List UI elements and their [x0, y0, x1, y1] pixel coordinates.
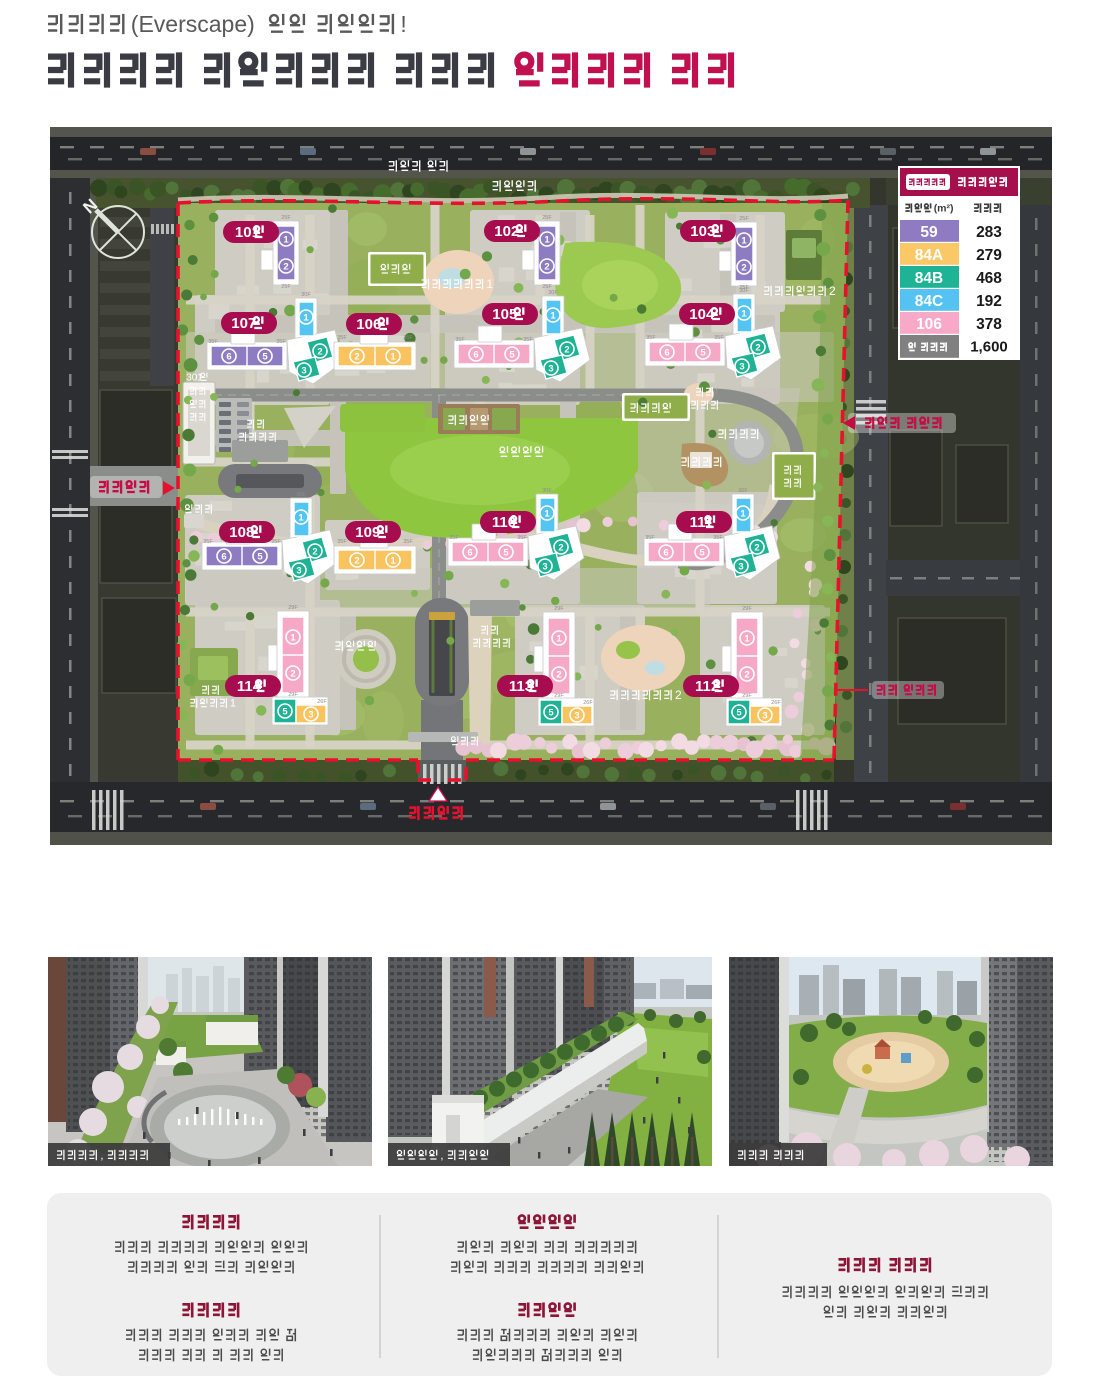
svg-text:3: 3 — [739, 361, 744, 372]
svg-text:5: 5 — [503, 547, 509, 558]
svg-text:3: 3 — [574, 710, 579, 721]
svg-text:6: 6 — [467, 547, 472, 558]
svg-text:30F: 30F — [739, 288, 749, 294]
svg-text:106: 106 — [356, 316, 381, 333]
svg-text:26F: 26F — [317, 699, 327, 705]
svg-text:103: 103 — [690, 223, 715, 240]
svg-text:106: 106 — [916, 316, 942, 333]
svg-text:29F: 29F — [742, 693, 752, 699]
svg-text:30F: 30F — [542, 488, 552, 494]
svg-text:35F: 35F — [337, 539, 347, 545]
svg-text:3: 3 — [548, 363, 553, 374]
svg-text:6: 6 — [663, 547, 668, 558]
svg-text:5: 5 — [257, 551, 263, 562]
svg-text:35F: 35F — [203, 539, 213, 545]
svg-text:84B: 84B — [915, 270, 943, 287]
svg-text:25F: 25F — [281, 215, 291, 221]
svg-text:84A: 84A — [915, 247, 943, 264]
svg-text:26F: 26F — [583, 700, 593, 706]
svg-text:5: 5 — [736, 707, 742, 718]
svg-text:1: 1 — [486, 277, 493, 291]
svg-text:1: 1 — [556, 633, 562, 644]
svg-text:6: 6 — [221, 551, 226, 562]
svg-text:1: 1 — [303, 312, 309, 323]
svg-text:35F: 35F — [403, 539, 413, 545]
svg-text:,: , — [100, 1148, 103, 1162]
svg-text:35F: 35F — [449, 535, 459, 541]
svg-text:2: 2 — [741, 262, 746, 273]
svg-text:1: 1 — [290, 632, 296, 643]
svg-text:35F: 35F — [517, 535, 527, 541]
svg-text:2: 2 — [829, 284, 836, 298]
svg-text:3: 3 — [738, 561, 743, 572]
svg-text:35F: 35F — [455, 337, 465, 343]
svg-text:6: 6 — [226, 351, 231, 362]
svg-text:2: 2 — [290, 668, 295, 679]
svg-text:,: , — [440, 1148, 443, 1162]
svg-text:25F: 25F — [542, 215, 552, 221]
svg-text:3: 3 — [308, 709, 313, 720]
svg-text:2: 2 — [317, 346, 322, 357]
svg-text:25F: 25F — [281, 284, 291, 290]
svg-text:2: 2 — [675, 688, 682, 702]
svg-text:1: 1 — [390, 555, 396, 566]
svg-text:84C: 84C — [915, 293, 943, 310]
svg-text:5: 5 — [700, 347, 706, 358]
svg-text:3: 3 — [296, 565, 301, 576]
svg-text:283: 283 — [976, 224, 1002, 241]
svg-text:29F: 29F — [288, 692, 298, 698]
svg-text:5: 5 — [262, 351, 268, 362]
svg-text:2: 2 — [558, 542, 563, 553]
svg-text:104: 104 — [689, 306, 715, 323]
svg-text:1: 1 — [544, 234, 550, 245]
svg-text:105: 105 — [492, 306, 517, 323]
svg-text:3: 3 — [301, 365, 306, 376]
svg-text:6: 6 — [664, 347, 669, 358]
svg-text:1: 1 — [230, 698, 236, 710]
svg-text:5: 5 — [282, 706, 288, 717]
svg-text:35F: 35F — [276, 339, 286, 345]
svg-text:1: 1 — [283, 234, 289, 245]
svg-text:30F: 30F — [301, 292, 311, 298]
svg-text:35F: 35F — [208, 339, 218, 345]
svg-text:29F: 29F — [742, 606, 752, 612]
svg-text:2: 2 — [544, 261, 549, 272]
svg-text:25F: 25F — [739, 216, 749, 222]
svg-text:1: 1 — [550, 310, 556, 321]
svg-text:378: 378 — [976, 316, 1002, 333]
svg-text:35F: 35F — [645, 535, 655, 541]
svg-text:35F: 35F — [713, 535, 723, 541]
svg-text:29F: 29F — [554, 606, 564, 612]
svg-text:59: 59 — [920, 224, 938, 241]
svg-text:1: 1 — [390, 351, 396, 362]
svg-text:2: 2 — [354, 555, 359, 566]
svg-text:30F: 30F — [548, 290, 558, 296]
svg-text:5: 5 — [548, 707, 554, 718]
svg-text:35F: 35F — [714, 335, 724, 341]
svg-text:30F: 30F — [738, 488, 748, 494]
svg-text:2: 2 — [564, 344, 569, 355]
svg-text:1: 1 — [298, 512, 304, 523]
svg-text:26F: 26F — [771, 700, 781, 706]
svg-text:5: 5 — [699, 547, 705, 558]
svg-text:2: 2 — [755, 342, 760, 353]
svg-text:35F: 35F — [271, 539, 281, 545]
svg-text:1: 1 — [544, 508, 550, 519]
svg-text:102: 102 — [494, 223, 519, 240]
svg-text:2: 2 — [556, 669, 561, 680]
svg-text:35F: 35F — [403, 335, 413, 341]
svg-text:5: 5 — [509, 349, 515, 360]
svg-text:192: 192 — [976, 293, 1002, 310]
svg-text:35F: 35F — [337, 335, 347, 341]
svg-text:109: 109 — [355, 524, 380, 541]
svg-text:2: 2 — [312, 546, 317, 557]
svg-text:6: 6 — [473, 349, 478, 360]
svg-text:2: 2 — [354, 351, 359, 362]
svg-text:2: 2 — [283, 261, 288, 272]
svg-text:107: 107 — [231, 315, 256, 332]
svg-text:2: 2 — [744, 669, 749, 680]
svg-text:29F: 29F — [554, 693, 564, 699]
svg-text:2: 2 — [754, 542, 759, 553]
svg-text:108: 108 — [229, 524, 254, 541]
svg-text:1: 1 — [741, 308, 747, 319]
svg-text:3: 3 — [542, 561, 547, 572]
svg-text:29F: 29F — [288, 605, 298, 611]
svg-text:1: 1 — [744, 633, 750, 644]
svg-text:1,600: 1,600 — [970, 339, 1008, 356]
svg-text:1: 1 — [741, 235, 747, 246]
svg-text:30F: 30F — [296, 492, 306, 498]
svg-text:468: 468 — [976, 270, 1002, 287]
svg-text:279: 279 — [976, 247, 1002, 264]
svg-text:35F: 35F — [523, 337, 533, 343]
svg-text:35F: 35F — [646, 335, 656, 341]
svg-text:3: 3 — [762, 710, 767, 721]
svg-text:(m²): (m²) — [934, 203, 954, 215]
svg-text:1: 1 — [740, 508, 746, 519]
